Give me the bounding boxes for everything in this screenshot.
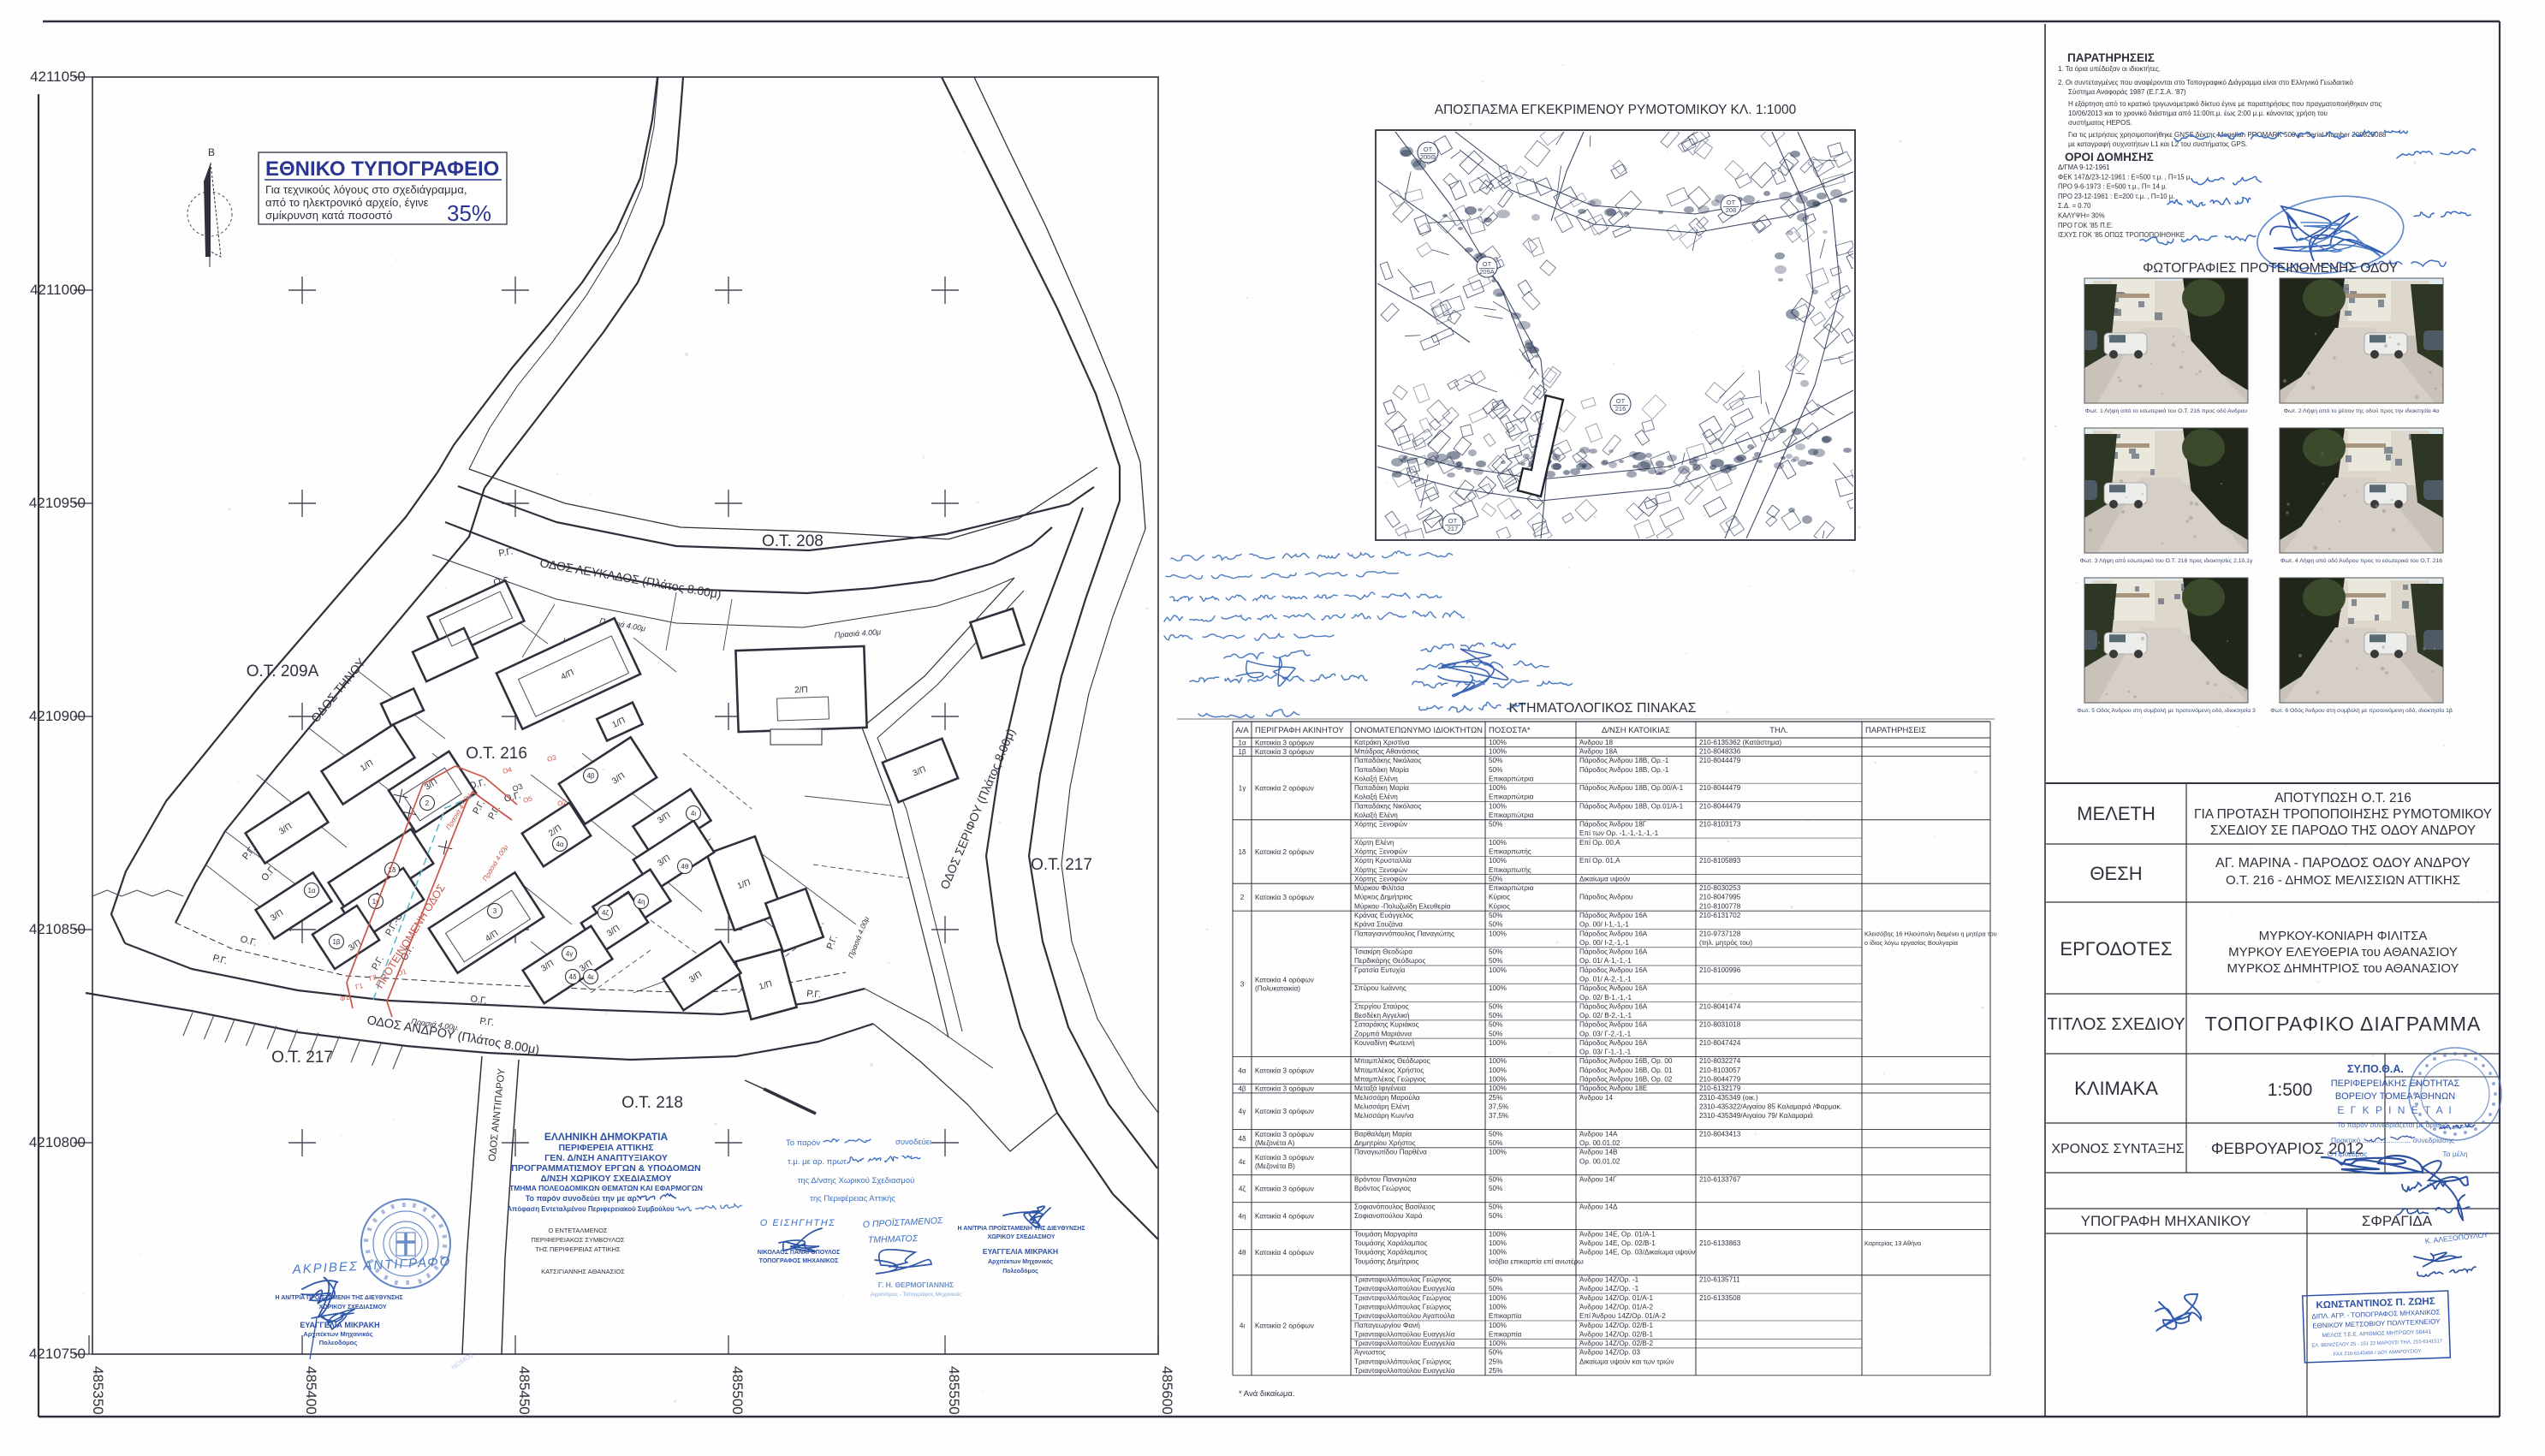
svg-text:Το παρόν: Το παρόν <box>786 1138 820 1148</box>
svg-text:Επικαρπώτρια: Επικαρπώτρια <box>1489 793 1534 801</box>
svg-text:100%: 100% <box>1489 1085 1507 1092</box>
svg-text:Ο.Τ. 217: Ο.Τ. 217 <box>271 1049 333 1067</box>
svg-text:Πάροδος Άνδρου 18Β, Ορ.00/Α-1: Πάροδος Άνδρου 18Β, Ορ.00/Α-1 <box>1579 784 1684 792</box>
svg-text:1β: 1β <box>332 938 340 946</box>
svg-text:της Δ/νσης Χωρικού Σχεδιασμού: της Δ/νσης Χωρικού Σχεδιασμού <box>798 1176 915 1186</box>
svg-text:Άνδρου 14Β: Άνδρου 14Β <box>1579 1149 1618 1156</box>
svg-text:Επικαρπία: Επικαρπία <box>1489 1312 1522 1320</box>
svg-text:ΟΤ: ΟΤ <box>1483 260 1492 268</box>
svg-text:ΤΟΠΟΓΡΑΦΟΣ ΜΗΧΑΝΙΚΟΣ: ΤΟΠΟΓΡΑΦΟΣ ΜΗΧΑΝΙΚΟΣ <box>759 1258 839 1264</box>
svg-text:Ο ΕΙΣΗΓΗΤΗΣ: Ο ΕΙΣΗΓΗΤΗΣ <box>760 1218 836 1228</box>
svg-text:Κατοικία 3 ορόφων: Κατοικία 3 ορόφων <box>1255 1186 1314 1193</box>
svg-text:4α: 4α <box>1238 1067 1246 1074</box>
svg-text:Επικαρπώτρια: Επικαρπώτρια <box>1489 811 1534 819</box>
svg-text:Το παρόν συνοδεύει την με αρ.: Το παρόν συνοδεύει την με αρ. <box>526 1194 639 1203</box>
svg-text:ΕΛΛΗΝΙΚΗ ΔΗΜΟΚΡΑΤΙΑ: ΕΛΛΗΝΙΚΗ ΔΗΜΟΚΡΑΤΙΑ <box>544 1131 669 1143</box>
svg-text:ΤΗΛ.: ΤΗΛ. <box>1769 726 1788 735</box>
svg-text:3: 3 <box>1240 980 1245 988</box>
svg-text:Άνδρου 18Α: Άνδρου 18Α <box>1579 747 1618 755</box>
svg-text:50%: 50% <box>1489 1176 1502 1184</box>
svg-text:Ο Πρόεδρος: Ο Πρόεδρος <box>2328 1150 2368 1158</box>
svg-text:210-8100778: 210-8100778 <box>1699 902 1741 910</box>
svg-text:100%: 100% <box>1489 1249 1507 1257</box>
svg-text:ΠΕΡΙΦΕΡΕΙΑ ΑΤΤΙΚΗΣ: ΠΕΡΙΦΕΡΕΙΑ ΑΤΤΙΚΗΣ <box>558 1143 653 1153</box>
svg-text:ΘΕΣΗ: ΘΕΣΗ <box>2090 863 2142 884</box>
svg-text:4θ: 4θ <box>681 863 689 871</box>
svg-text:100%: 100% <box>1489 784 1507 792</box>
svg-text:Επικαρπώτρια: Επικαρπώτρια <box>1489 884 1534 892</box>
svg-text:ΤΗΣ ΠΕΡΙΦΕΡΕΙΑΣ ΑΤΤΙΚΗΣ: ΤΗΣ ΠΕΡΙΦΕΡΕΙΑΣ ΑΤΤΙΚΗΣ <box>535 1245 621 1253</box>
svg-text:ΝΙΚΟΛΑΟΣ ΠΑΝΑΓΟΠΟΥΛΟΣ: ΝΙΚΟΛΑΟΣ ΠΑΝΑΓΟΠΟΥΛΟΣ <box>758 1250 840 1256</box>
svg-text:Πάροδος Άνδρου 16Β, Ορ. 01: Πάροδος Άνδρου 16Β, Ορ. 01 <box>1579 1067 1673 1074</box>
svg-text:από το ηλεκτρονικό αρχείο, έγι: από το ηλεκτρονικό αρχείο, έγινε <box>265 196 429 209</box>
svg-text:ΦΩΤΟΓΡΑΦΙΕΣ ΠΡΟΤΕΙΝΟΜΕΝΗΣ ΟΔΟΥ: ΦΩΤΟΓΡΑΦΙΕΣ ΠΡΟΤΕΙΝΟΜΕΝΗΣ ΟΔΟΥ <box>2143 261 2398 276</box>
svg-text:200Θ: 200Θ <box>1420 153 1436 161</box>
svg-text:210-8105893: 210-8105893 <box>1699 857 1741 865</box>
svg-text:485350: 485350 <box>90 1366 106 1415</box>
svg-text:Α/Α: Α/Α <box>1235 726 1249 735</box>
svg-text:Πάροδος Άνδρου 16Α: Πάροδος Άνδρου 16Α <box>1579 1039 1648 1047</box>
svg-text:Δημητρίου Χρήστος: Δημητρίου Χρήστος <box>1354 1139 1416 1147</box>
svg-text:Επικαρπώτρια: Επικαρπώτρια <box>1489 775 1534 782</box>
svg-text:2310-435322/Αιγαίου 85 Καλαμαρ: 2310-435322/Αιγαίου 85 Καλαμαριά /Φαρμακ… <box>1699 1102 1842 1110</box>
svg-text:Χόρτης Ξενοφών: Χόρτης Ξενοφών <box>1354 866 1407 874</box>
svg-text:Μπαμπλέκος Θεόδωρος: Μπαμπλέκος Θεόδωρος <box>1354 1057 1430 1065</box>
svg-text:Κράνα Σουζάνα: Κράνα Σουζάνα <box>1354 921 1403 929</box>
svg-text:4ε: 4ε <box>1239 1158 1246 1166</box>
svg-text:Σαταράκης Κυριάκος: Σαταράκης Κυριάκος <box>1354 1021 1419 1029</box>
svg-text:210-8100996: 210-8100996 <box>1699 966 1741 974</box>
svg-text:4η: 4η <box>1238 1213 1246 1221</box>
svg-text:210-6133767: 210-6133767 <box>1699 1176 1741 1184</box>
svg-text:210-6133508: 210-6133508 <box>1699 1294 1741 1302</box>
svg-text:2/Π: 2/Π <box>794 686 808 696</box>
svg-text:ΥΠΟΓΡΑΦΗ ΜΗΧΑΝΙΚΟΥ: ΥΠΟΓΡΑΦΗ ΜΗΧΑΝΙΚΟΥ <box>2081 1213 2251 1229</box>
svg-text:100%: 100% <box>1489 1076 1507 1084</box>
svg-text:Κλεισόβης 16 Ηλιούπολη διαμένε: Κλεισόβης 16 Ηλιούπολη διαμένει η μητέρα… <box>1864 930 1997 937</box>
svg-text:(Μεζονέτα Β): (Μεζονέτα Β) <box>1255 1162 1295 1170</box>
svg-text:1:500: 1:500 <box>2268 1080 2313 1100</box>
svg-text:ΠΕΡΙΓΡΑΦΗ ΑΚΙΝΗΤΟΥ: ΠΕΡΙΓΡΑΦΗ ΑΚΙΝΗΤΟΥ <box>1255 726 1344 735</box>
svg-text:Κολαξή Ελένη: Κολαξή Ελένη <box>1354 811 1398 819</box>
svg-text:Τα μέλη: Τα μέλη <box>2442 1150 2467 1158</box>
svg-text:Η ΑΝ/ΤΡΙΑ ΠΡΟΪΣΤΑΜΕΝΗ ΤΗΣ ΔΙΕΥ: Η ΑΝ/ΤΡΙΑ ΠΡΟΪΣΤΑΜΕΝΗ ΤΗΣ ΔΙΕΥΘΥΝΣΗΣ <box>275 1294 402 1301</box>
svg-text:Τσιακίρη Θεοδώρα: Τσιακίρη Θεοδώρα <box>1354 948 1412 956</box>
svg-text:ΠΡΟ ΓΟΚ '85 Π.Ε.: ΠΡΟ ΓΟΚ '85 Π.Ε. <box>2058 222 2113 229</box>
svg-text:Το παρόν συνεδριάζεται με: Το παρόν συνεδριάζεται με αριθμό <box>2337 1120 2448 1129</box>
svg-text:Η ΑΝ/ΤΡΙΑ ΠΡΟΪΣΤΑΜΕΝΗ ΤΗΣ ΔΙΕΥ: Η ΑΝ/ΤΡΙΑ ΠΡΟΪΣΤΑΜΕΝΗ ΤΗΣ ΔΙΕΥΘΥΝΣΗΣ <box>957 1225 1085 1232</box>
svg-text:Τριανταφυλλοπούλου Αγαπούλα: Τριανταφυλλοπούλου Αγαπούλα <box>1354 1312 1455 1320</box>
svg-text:ο ίδιος λόγω εργασίας Βουλγαρί: ο ίδιος λόγω εργασίας Βουλγαρία <box>1864 939 1959 947</box>
svg-text:Χόρτης Ξενοφών: Χόρτης Ξενοφών <box>1354 848 1407 856</box>
svg-text:25%: 25% <box>1489 1367 1502 1375</box>
svg-text:Κατοικία 2 ορόφων: Κατοικία 2 ορόφων <box>1255 848 1314 856</box>
svg-text:ΜΥΡΚΟΥ ΕΛΕΥΘΕΡΙΑ του ΑΘΑΝΑΣΙΟΥ: ΜΥΡΚΟΥ ΕΛΕΥΘΕΡΙΑ του ΑΘΑΝΑΣΙΟΥ <box>2228 945 2458 960</box>
svg-text:Φωτ. 3 Λήψη από εσωτερικό του: Φωτ. 3 Λήψη από εσωτερικό του Ο.Τ. 216 π… <box>2080 557 2253 564</box>
svg-text:50%: 50% <box>1489 875 1502 883</box>
svg-text:Πάροδος Άνδρου 18Β, Ορ.01/Α-1: Πάροδος Άνδρου 18Β, Ορ.01/Α-1 <box>1579 802 1684 810</box>
svg-text:1β: 1β <box>1238 748 1246 756</box>
svg-text:ΦΕΚ 147Δ/23-12-1961 : Ε=500 τ.: ΦΕΚ 147Δ/23-12-1961 : Ε=500 τ.μ. , Π=15 … <box>2058 173 2192 181</box>
svg-text:4ε: 4ε <box>587 973 594 981</box>
svg-text:Πολεοδόμος: Πολεοδόμος <box>319 1339 358 1346</box>
svg-text:Χόρτης Ξενοφών: Χόρτης Ξενοφών <box>1354 875 1407 883</box>
svg-text:Κατοικία 3 ορόφων: Κατοικία 3 ορόφων <box>1255 1108 1314 1115</box>
svg-text:Ο.Τ. 209Α: Ο.Τ. 209Α <box>247 663 319 680</box>
svg-text:Επικαρπωτής: Επικαρπωτής <box>1489 866 1531 874</box>
svg-text:ΕΥΑΓΓΕΛΙΑ ΜΙΚΡΑΚΗ: ΕΥΑΓΓΕΛΙΑ ΜΙΚΡΑΚΗ <box>300 1321 379 1329</box>
svg-text:50%: 50% <box>1489 1212 1502 1220</box>
svg-text:Κατράκη Χριστίνα: Κατράκη Χριστίνα <box>1354 739 1410 746</box>
svg-text:4β: 4β <box>1238 1085 1246 1093</box>
svg-text:Βεσδέκη Αγγελική: Βεσδέκη Αγγελική <box>1354 1012 1410 1019</box>
svg-text:50%: 50% <box>1489 921 1502 929</box>
svg-text:210-8047424: 210-8047424 <box>1699 1039 1741 1047</box>
svg-text:B: B <box>208 146 215 158</box>
svg-text:209Α: 209Α <box>1479 268 1495 276</box>
svg-text:Κατοικία 3 ορόφων: Κατοικία 3 ορόφων <box>1255 739 1314 746</box>
svg-text:Χόρτη Κρυσταλλία: Χόρτη Κρυσταλλία <box>1354 857 1412 865</box>
svg-text:50%: 50% <box>1489 1021 1502 1029</box>
svg-text:Τριανταφυλλόπουλος Γεώργιος: Τριανταφυλλόπουλος Γεώργιος <box>1354 1358 1451 1365</box>
svg-text:485400: 485400 <box>303 1366 319 1415</box>
svg-text:210-9737128: 210-9737128 <box>1699 930 1741 937</box>
svg-text:Άνδρου 14Ζ/Ορ. 01/Α-1: Άνδρου 14Ζ/Ορ. 01/Α-1 <box>1579 1294 1653 1302</box>
svg-text:Παπαγιαννόπουλος Παναγιώτης: Παπαγιαννόπουλος Παναγιώτης <box>1354 930 1454 937</box>
svg-text:Παπαγεωργίου Φανή: Παπαγεωργίου Φανή <box>1354 1322 1420 1329</box>
svg-text:Αρχιτέκτων Μηχανικός: Αρχιτέκτων Μηχανικός <box>988 1259 1053 1265</box>
svg-text:ΚΑΤΣΙΓΙΑΝΝΗΣ ΑΘΑΝΑΣΙΟΣ: ΚΑΤΣΙΓΙΑΝΝΗΣ ΑΘΑΝΑΣΙΟΣ <box>541 1268 625 1275</box>
svg-text:210-8032274: 210-8032274 <box>1699 1057 1741 1065</box>
svg-text:ΠΑΡΑΤΗΡΗΣΕΙΣ: ΠΑΡΑΤΗΡΗΣΕΙΣ <box>1865 726 1926 735</box>
svg-text:Πάροδος Άνδρου 16Α: Πάροδος Άνδρου 16Α <box>1579 1021 1648 1029</box>
svg-text:ΓΕΝ. Δ/ΝΣΗ ΑΝΑΠΤΥΞΙΑΚΟΥ: ΓΕΝ. Δ/ΝΣΗ ΑΝΑΠΤΥΞΙΑΚΟΥ <box>544 1153 668 1163</box>
svg-text:4γ: 4γ <box>1239 1108 1247 1115</box>
svg-text:50%: 50% <box>1489 957 1502 965</box>
svg-text:Παναγιωτίδου Παρθένα: Παναγιωτίδου Παρθένα <box>1354 1149 1427 1156</box>
svg-text:Ορ. 01/ Α-2,-1,-1: Ορ. 01/ Α-2,-1,-1 <box>1579 975 1632 983</box>
svg-text:35%: 35% <box>447 200 491 226</box>
svg-text:ΟΤ: ΟΤ <box>1424 146 1433 153</box>
svg-text:25%: 25% <box>1489 1358 1502 1365</box>
svg-text:Δ/ΝΣΗ ΧΩΡΙΚΟΥ ΣΧΕΔΙΑΣΜΟΥ: Δ/ΝΣΗ ΧΩΡΙΚΟΥ ΣΧΕΔΙΑΣΜΟΥ <box>540 1174 671 1184</box>
svg-text:217: 217 <box>1448 525 1459 532</box>
svg-text:Ορ. 00/ Ι-2,-1,-1: Ορ. 00/ Ι-2,-1,-1 <box>1579 939 1629 947</box>
svg-text:Ο ΕΝΤΕΤΑΛΜΕΝΟΣ: Ο ΕΝΤΕΤΑΛΜΕΝΟΣ <box>548 1227 607 1234</box>
svg-text:100%: 100% <box>1489 1057 1507 1065</box>
svg-text:100%: 100% <box>1489 1239 1507 1247</box>
svg-text:4β: 4β <box>586 772 594 780</box>
svg-text:Δικαίωμα υψούν: Δικαίωμα υψούν <box>1579 875 1630 883</box>
svg-text:Επικαρπία: Επικαρπία <box>1489 1330 1522 1338</box>
svg-text:ΜΥΡΚΟΥ-ΚΟΝΙΑΡΗ ΦΙΛΙΤΣΑ: ΜΥΡΚΟΥ-ΚΟΝΙΑΡΗ ΦΙΛΙΤΣΑ <box>2259 929 2428 943</box>
svg-text:4η: 4η <box>638 898 645 906</box>
svg-text:Κατοικία 2 ορόφων: Κατοικία 2 ορόφων <box>1255 785 1314 793</box>
svg-text:Τριανταφυλλόπουλος Γεώργιος: Τριανταφυλλόπουλος Γεώργιος <box>1354 1276 1451 1284</box>
svg-text:Άνδρου 14Ε, Ορ. 02/Β-1: Άνδρου 14Ε, Ορ. 02/Β-1 <box>1579 1239 1656 1247</box>
svg-text:Φωτ. 2 Λήψη από το μέσον της ο: Φωτ. 2 Λήψη από το μέσον της οδού προς τ… <box>2284 407 2440 414</box>
svg-text:Κύριος: Κύριος <box>1489 902 1510 910</box>
svg-text:100%: 100% <box>1489 739 1507 746</box>
svg-text:Πάροδος Άνδρου 18Β, Ορ.-1: Πάροδος Άνδρου 18Β, Ορ.-1 <box>1579 757 1669 764</box>
svg-text:Δ/ΝΣΗ ΚΑΤΟΙΚΙΑΣ: Δ/ΝΣΗ ΚΑΤΟΙΚΙΑΣ <box>1602 726 1670 735</box>
svg-text:Άνδρου 14: Άνδρου 14 <box>1579 1094 1613 1102</box>
svg-text:100%: 100% <box>1489 966 1507 974</box>
svg-text:ΣΥ.ΠΟ.Θ.Α.: ΣΥ.ΠΟ.Θ.Α. <box>2347 1063 2404 1075</box>
svg-text:Κατοικία 4 ορόφων: Κατοικία 4 ορόφων <box>1255 1213 1314 1221</box>
svg-text:Καρτερίας 13 Αθήνα: Καρτερίας 13 Αθήνα <box>1864 1239 1922 1247</box>
svg-text:4ζ: 4ζ <box>602 909 609 917</box>
svg-text:ΑΠΟΤΥΠΩΣΗ Ο.Τ. 216: ΑΠΟΤΥΠΩΣΗ Ο.Τ. 216 <box>2274 791 2411 805</box>
svg-text:50%: 50% <box>1489 1012 1502 1019</box>
svg-text:της Περιφέρειας Αττικής: της Περιφέρειας Αττικής <box>810 1194 895 1203</box>
svg-text:1δ: 1δ <box>1238 848 1246 856</box>
svg-text:ΠΡΟ 9-6-1973 : Ε=500 τ.μ., Π=: ΠΡΟ 9-6-1973 : Ε=500 τ.μ., Π= 14 μ. <box>2058 183 2167 191</box>
svg-text:(Πολυκατοικία): (Πολυκατοικία) <box>1255 984 1300 992</box>
svg-text:Πολεοδόμος: Πολεοδόμος <box>1002 1268 1038 1275</box>
svg-text:ΠΕΡΙΦΕΡΕΙΑΚΗΣ ΕΝΟΤΗΤΑΣ: ΠΕΡΙΦΕΡΕΙΑΚΗΣ ΕΝΟΤΗΤΑΣ <box>2331 1079 2460 1089</box>
svg-text:ΠΑΡΑΤΗΡΗΣΕΙΣ: ΠΑΡΑΤΗΡΗΣΕΙΣ <box>2067 51 2155 64</box>
svg-text:485500: 485500 <box>729 1366 746 1415</box>
svg-text:4ι: 4ι <box>1240 1322 1246 1329</box>
svg-text:100%: 100% <box>1489 802 1507 810</box>
svg-text:100%: 100% <box>1489 1149 1507 1156</box>
svg-text:ΟΤ: ΟΤ <box>1448 517 1458 525</box>
svg-text:Κατοικία 4 ορόφων: Κατοικία 4 ορόφων <box>1255 976 1314 984</box>
svg-text:Ο.Τ. 218: Ο.Τ. 218 <box>621 1094 683 1112</box>
svg-text:ΑΠΟΣΠΑΣΜΑ ΕΓΚΕΚΡΙΜΕΝΟΥ ΡΥΜΟΤΟΜ: ΑΠΟΣΠΑΣΜΑ ΕΓΚΕΚΡΙΜΕΝΟΥ ΡΥΜΟΤΟΜΙΚΟΥ ΚΛ. 1… <box>1435 103 1797 117</box>
svg-text:Πάροδος Άνδρου 18Γ: Πάροδος Άνδρου 18Γ <box>1579 821 1647 829</box>
svg-text:100%: 100% <box>1489 747 1507 755</box>
svg-text:2310-435349 (οικ.): 2310-435349 (οικ.) <box>1699 1094 1758 1102</box>
svg-text:(Μεζονέτα Α): (Μεζονέτα Α) <box>1255 1139 1295 1147</box>
svg-text:ΚΤΗΜΑΤΟΛΟΓΙΚΟΣ ΠΙΝΑΚΑΣ: ΚΤΗΜΑΤΟΛΟΓΙΚΟΣ ΠΙΝΑΚΑΣ <box>1509 701 1697 716</box>
svg-text:ΠΡΟ 23-12-1961 : Ε=200 τ.μ. ,: ΠΡΟ 23-12-1961 : Ε=200 τ.μ. , Π=10 μ. <box>2058 193 2174 200</box>
svg-text:210-6135711: 210-6135711 <box>1699 1276 1740 1284</box>
svg-text:50%: 50% <box>1489 1203 1502 1210</box>
svg-text:100%: 100% <box>1489 1039 1507 1047</box>
svg-text:Για τεχνικούς λόγους στο σ: Για τεχνικούς λόγους στο σχεδιάγραμμα, <box>265 183 467 196</box>
svg-text:210-8031018: 210-8031018 <box>1699 1021 1741 1029</box>
svg-text:ΚΛΙΜΑΚΑ: ΚΛΙΜΑΚΑ <box>2074 1078 2158 1099</box>
svg-text:Άνδρου 14Ζ/Ορ. 03: Άνδρου 14Ζ/Ορ. 03 <box>1579 1349 1640 1357</box>
svg-text:ΤΜΗΜΑΤΟΣ: ΤΜΗΜΑΤΟΣ <box>868 1233 919 1245</box>
svg-text:Ρ.Γ.: Ρ.Γ. <box>479 1016 495 1028</box>
svg-text:Δικαίωμα υψούν και των τριών: Δικαίωμα υψούν και των τριών <box>1579 1358 1674 1365</box>
svg-text:Τριανταφυλλοπούλου Ευαγγελία: Τριανταφυλλοπούλου Ευαγγελία <box>1354 1367 1455 1375</box>
svg-text:ΤΜΗΜΑ ΠΟΛΕΟΔΟΜΙΚΩΝ ΘΕΜΑΤΩΝ ΚΑΙ: ΤΜΗΜΑ ΠΟΛΕΟΔΟΜΙΚΩΝ ΘΕΜΑΤΩΝ ΚΑΙ ΕΦΑΡΜΟΓΩΝ <box>509 1184 703 1192</box>
svg-text:Ορ. 00,01,02: Ορ. 00,01,02 <box>1579 1157 1620 1165</box>
svg-text:Επικαρπωτής: Επικαρπωτής <box>1489 848 1531 856</box>
svg-text:Επί Άνδρου 14Ζ/Ορ. 01/Α-2: Επί Άνδρου 14Ζ/Ορ. 01/Α-2 <box>1579 1312 1666 1320</box>
svg-text:Σύστημα Αναφοράς 1987 (Ε.Γ.Σ.Α: Σύστημα Αναφοράς 1987 (Ε.Γ.Σ.Α. '87) <box>2068 88 2186 96</box>
svg-text:37,5%: 37,5% <box>1489 1102 1508 1110</box>
svg-text:Σπύρου Ιωάννης: Σπύρου Ιωάννης <box>1354 984 1406 992</box>
svg-text:Πάροδος Άνδρου: Πάροδος Άνδρου <box>1579 894 1633 901</box>
svg-text:ΟΡΟΙ ΔΟΜΗΣΗΣ: ΟΡΟΙ ΔΟΜΗΣΗΣ <box>2065 151 2154 163</box>
svg-text:Επί Ορ. 00,Α: Επί Ορ. 00,Α <box>1579 839 1620 847</box>
svg-text:Άνδρου 14Ζ/Ορ. 02/Β-2: Άνδρου 14Ζ/Ορ. 02/Β-2 <box>1579 1340 1653 1347</box>
svg-text:ΕΘΝΙΚΟ ΤΥΠΟΓΡΑΦΕΙΟ: ΕΘΝΙΚΟ ΤΥΠΟΓΡΑΦΕΙΟ <box>265 157 499 181</box>
svg-text:Κουναδίνη Φωτεινή: Κουναδίνη Φωτεινή <box>1354 1039 1415 1047</box>
svg-text:Ορ. 02/ Β-2,-1,-1: Ορ. 02/ Β-2,-1,-1 <box>1579 1012 1632 1019</box>
svg-text:1α: 1α <box>307 887 315 894</box>
svg-text:25%: 25% <box>1489 1094 1502 1102</box>
svg-text:ΜΕΛΕΤΗ: ΜΕΛΕΤΗ <box>2077 803 2156 824</box>
svg-text:Ορ. 03/ Γ-2,-1,-1: Ορ. 03/ Γ-2,-1,-1 <box>1579 1030 1632 1037</box>
svg-text:Η εξάρτηση από το κρατικό τριγ: Η εξάρτηση από το κρατικό τριγωνομετρικό… <box>2068 100 2381 108</box>
svg-text:σμίκρυνση κατά ποσοστό: σμίκρυνση κατά ποσοστό <box>265 209 392 222</box>
svg-text:Πάροδος Άνδρου 18Β, Ορ.-1: Πάροδος Άνδρου 18Β, Ορ.-1 <box>1579 766 1669 774</box>
svg-text:Πάροδος Άνδρου 16Α: Πάροδος Άνδρου 16Α <box>1579 1002 1648 1010</box>
svg-text:Ο.Τ. 216 - ΔΗΜΟΣ ΜΕΛΙΣΣΙΩΝ ΑΤΤ: Ο.Τ. 216 - ΔΗΜΟΣ ΜΕΛΙΣΣΙΩΝ ΑΤΤΙΚΗΣ <box>2226 873 2460 888</box>
svg-text:Άνδρου 14Ζ/Ορ. -1: Άνδρου 14Ζ/Ορ. -1 <box>1579 1285 1639 1293</box>
svg-text:Παπαδάκης Νικόλαος: Παπαδάκης Νικόλαος <box>1354 802 1421 810</box>
svg-text:Σοφιανοπούλου Χαρά: Σοφιανοπούλου Χαρά <box>1354 1212 1423 1220</box>
svg-text:Παπαδάκη Μαρία: Παπαδάκη Μαρία <box>1354 766 1409 774</box>
svg-text:100%: 100% <box>1489 1067 1507 1074</box>
svg-text:Γ. Η. ΘΕΡΜΟΓΙΑΝΝΗΣ: Γ. Η. ΘΕΡΜΟΓΙΑΝΝΗΣ <box>878 1281 954 1289</box>
svg-text:Κύριος: Κύριος <box>1489 894 1510 901</box>
svg-text:Πάροδος Άνδρου 16Α: Πάροδος Άνδρου 16Α <box>1579 930 1648 937</box>
svg-text:Κολαξή Ελένη: Κολαξή Ελένη <box>1354 793 1398 801</box>
svg-text:Άνδρου 14Ε, Ορ. 03/Δικαίωμα υψ: Άνδρου 14Ε, Ορ. 03/Δικαίωμα υψούν <box>1579 1249 1695 1257</box>
svg-text:4δ: 4δ <box>1238 1135 1246 1143</box>
svg-text:100%: 100% <box>1489 839 1507 847</box>
svg-text:ΒΟΡΕΙΟΥ ΤΟΜΕΑ ΑΘΗΝΩΝ: ΒΟΡΕΙΟΥ ΤΟΜΕΑ ΑΘΗΝΩΝ <box>2335 1091 2455 1102</box>
svg-text:4ι: 4ι <box>691 810 696 817</box>
svg-text:ΚΑΛΥΨΗ= 30%: ΚΑΛΥΨΗ= 30% <box>2058 212 2105 220</box>
svg-text:Σοφιανόπουλος Βασίλειος: Σοφιανόπουλος Βασίλειος <box>1354 1203 1435 1210</box>
svg-text:210-8044479: 210-8044479 <box>1699 784 1741 792</box>
svg-text:1γ: 1γ <box>1239 785 1247 793</box>
svg-text:ΕΥΑΓΓΕΛΙΑ ΜΙΚΡΑΚΗ: ΕΥΑΓΓΕΛΙΑ ΜΙΚΡΑΚΗ <box>983 1247 1058 1256</box>
svg-text:210-8030253: 210-8030253 <box>1699 884 1741 892</box>
svg-text:50%: 50% <box>1489 821 1502 829</box>
svg-text:Χόρτης Ξενοφών: Χόρτης Ξενοφών <box>1354 821 1407 829</box>
svg-text:100%: 100% <box>1489 1322 1507 1329</box>
svg-text:τ.μ. με αρ. πρωτ.: τ.μ. με αρ. πρωτ. <box>788 1157 848 1167</box>
svg-text:1. Τα όρια υπέδειξαν οι ιδιοκτ: 1. Τα όρια υπέδειξαν οι ιδιοκτήτες. <box>2058 65 2161 73</box>
svg-text:Κατοικία 3 ορόφων: Κατοικία 3 ορόφων <box>1255 1131 1314 1138</box>
svg-text:485450: 485450 <box>516 1366 532 1415</box>
svg-text:Μπαμπλέκος Γεώργιος: Μπαμπλέκος Γεώργιος <box>1354 1076 1426 1084</box>
svg-text:Επί Ορ. 01,Α: Επί Ορ. 01,Α <box>1579 857 1620 865</box>
svg-text:Γρατσία Ευτυχία: Γρατσία Ευτυχία <box>1354 966 1406 974</box>
svg-text:ΟΤ: ΟΤ <box>1616 397 1626 405</box>
svg-text:Μελισσάρη Μαρούλα: Μελισσάρη Μαρούλα <box>1354 1094 1420 1102</box>
svg-text:Τουμάσης Δημήτριος: Τουμάσης Δημήτριος <box>1354 1257 1419 1265</box>
svg-text:Μπάδρας Αθανάσιος: Μπάδρας Αθανάσιος <box>1354 747 1419 755</box>
svg-text:4ζ: 4ζ <box>1239 1186 1246 1193</box>
svg-text:Ο.Τ. 216: Ο.Τ. 216 <box>466 745 527 763</box>
svg-text:Πάροδος Άνδρου 16Β, Ορ. 02: Πάροδος Άνδρου 16Β, Ορ. 02 <box>1579 1076 1673 1084</box>
svg-text:50%: 50% <box>1489 766 1502 774</box>
svg-text:Παπαδάκη Μαρία: Παπαδάκη Μαρία <box>1354 784 1409 792</box>
svg-text:Ορ. 00.01.02: Ορ. 00.01.02 <box>1579 1139 1620 1147</box>
svg-text:2: 2 <box>425 799 430 807</box>
svg-text:50%: 50% <box>1489 1002 1502 1010</box>
svg-text:* Ανά δικαίωμα.: * Ανά δικαίωμα. <box>1239 1389 1295 1399</box>
svg-text:Άνδρου 18: Άνδρου 18 <box>1579 739 1613 746</box>
svg-text:Επί των Ορ. -1,-1,-1,-1,-1: Επί των Ορ. -1,-1,-1,-1,-1 <box>1579 829 1659 837</box>
svg-text:Μύρκου Φιλίτσα: Μύρκου Φιλίτσα <box>1354 884 1405 892</box>
svg-text:100%: 100% <box>1489 1340 1507 1347</box>
svg-text:Κατοικία 3 ορόφων: Κατοικία 3 ορόφων <box>1255 1085 1314 1093</box>
svg-text:Κατοικία 3 ορόφων: Κατοικία 3 ορόφων <box>1255 894 1314 901</box>
svg-text:Ζορμπά Μαριάννα: Ζορμπά Μαριάννα <box>1354 1030 1412 1037</box>
svg-text:Άγνωστος: Άγνωστος <box>1354 1349 1386 1357</box>
svg-text:Πάροδος Άνδρου 16Β, Ορ. 00: Πάροδος Άνδρου 16Β, Ορ. 00 <box>1579 1057 1673 1065</box>
svg-text:Κολαξή Ελένη: Κολαξή Ελένη <box>1354 775 1398 782</box>
svg-text:Περδικάρης Θεόδωρος: Περδικάρης Θεόδωρος <box>1354 957 1425 965</box>
svg-text:Απόφαση Εντεταλμένου Περιφερει: Απόφαση Εντεταλμένου Περιφερειακού Συμβο… <box>507 1205 675 1213</box>
svg-text:Σ.Δ. = 0.70: Σ.Δ. = 0.70 <box>2058 202 2091 210</box>
svg-text:Τριανταφυλλοπούλου Ευαγγελία: Τριανταφυλλοπούλου Ευαγγελία <box>1354 1285 1455 1293</box>
svg-text:Μεταξά Ιφιγένεια: Μεταξά Ιφιγένεια <box>1354 1085 1406 1092</box>
svg-text:210-8047995: 210-8047995 <box>1699 894 1741 901</box>
svg-text:ΠΡΟΓΡΑΜΜΑΤΙΣΜΟΥ ΕΡΓΩΝ & ΥΠΟΔΟΜ: ΠΡΟΓΡΑΜΜΑΤΙΣΜΟΥ ΕΡΓΩΝ & ΥΠΟΔΟΜΩΝ <box>511 1163 700 1174</box>
svg-text:210-6131702: 210-6131702 <box>1699 912 1741 919</box>
svg-text:ΙΣΧΥΣ ΓΟΚ '85 ΟΠΩΣ ΤΡΟΠΟΠΟΙΗΘΗ: ΙΣΧΥΣ ΓΟΚ '85 ΟΠΩΣ ΤΡΟΠΟΠΟΙΗΘΗΚΕ <box>2058 231 2185 239</box>
svg-text:210-8044779: 210-8044779 <box>1699 1076 1741 1084</box>
svg-text:Φωτ. 4 Λήψη από οδό Άνδρου προ: Φωτ. 4 Λήψη από οδό Άνδρου προς το εσωτε… <box>2280 557 2442 564</box>
svg-text:50%: 50% <box>1489 1349 1502 1357</box>
svg-text:100%: 100% <box>1489 1294 1507 1302</box>
svg-text:210-8044479: 210-8044479 <box>1699 757 1741 764</box>
svg-text:Φωτ. 1 Λήψη από το εσωτερικό τ: Φωτ. 1 Λήψη από το εσωτερικό του Ο.Τ. 21… <box>2085 407 2247 414</box>
svg-text:210-6132179: 210-6132179 <box>1699 1085 1741 1092</box>
svg-text:Βαρθαλάμη Μαρία: Βαρθαλάμη Μαρία <box>1354 1130 1412 1138</box>
svg-text:Βρόντος Γεώργιος: Βρόντος Γεώργιος <box>1354 1185 1411 1192</box>
svg-text:Μύρκου -Πολυζωίδη Ελευθερία: Μύρκου -Πολυζωίδη Ελευθερία <box>1354 902 1451 910</box>
svg-text:Αγρονόμος - Τοπογράφος Μηχανικ: Αγρονόμος - Τοπογράφος Μηχανικός <box>871 1291 962 1298</box>
svg-text:Άνδρου 14Δ: Άνδρου 14Δ <box>1579 1203 1618 1210</box>
svg-text:1α: 1α <box>1238 739 1246 746</box>
svg-text:Άνδρου 14Α: Άνδρου 14Α <box>1579 1130 1618 1138</box>
svg-text:Δ/ΓΜΑ 9-12-1961: Δ/ΓΜΑ 9-12-1961 <box>2058 163 2110 171</box>
svg-text:210-8103173: 210-8103173 <box>1699 821 1741 829</box>
svg-text:485550: 485550 <box>946 1366 962 1415</box>
svg-text:216: 216 <box>1615 405 1626 413</box>
svg-text:Πάροδος Άνδρου 16Α: Πάροδος Άνδρου 16Α <box>1579 966 1648 974</box>
svg-text:ΟΝΟΜΑΤΕΠΩΝΥΜΟ ΙΔΙΟΚΤΗΤΩΝ: ΟΝΟΜΑΤΕΠΩΝΥΜΟ ΙΔΙΟΚΤΗΤΩΝ <box>1354 726 1483 735</box>
svg-text:Άνδρου 14Ζ/Ορ. 01/Α-2: Άνδρου 14Ζ/Ορ. 01/Α-2 <box>1579 1304 1653 1311</box>
svg-text:Χόρτη Ελένη: Χόρτη Ελένη <box>1354 839 1394 847</box>
svg-text:ΣΧΕΔΙΟΥ ΣΕ ΠΑΡΟΔΟ ΤΗΣ ΟΔΟΥ ΑΝΔ: ΣΧΕΔΙΟΥ ΣΕ ΠΑΡΟΔΟ ΤΗΣ ΟΔΟΥ ΑΝΔΡΟΥ <box>2210 823 2476 838</box>
svg-text:Κατοικία 3 ορόφων: Κατοικία 3 ορόφων <box>1255 1067 1314 1074</box>
svg-text:3: 3 <box>493 907 497 915</box>
svg-text:Κατοικία 4 ορόφων: Κατοικία 4 ορόφων <box>1255 1249 1314 1257</box>
svg-text:(τηλ. μητρός του): (τηλ. μητρός του) <box>1699 939 1752 947</box>
svg-text:2310-435349/Αιγαίου 79/ Καλαμα: 2310-435349/Αιγαίου 79/ Καλαμαριά <box>1699 1112 1813 1120</box>
svg-text:Άνδρου 14Ζ/Ορ. 02/Β-1: Άνδρου 14Ζ/Ορ. 02/Β-1 <box>1579 1330 1653 1338</box>
svg-text:210-8043413: 210-8043413 <box>1699 1130 1741 1138</box>
svg-text:Πάροδος Άνδρου 16Α: Πάροδος Άνδρου 16Α <box>1579 948 1648 956</box>
svg-text:2. Οι συντεταγμένες που αναφέρ: 2. Οι συντεταγμένες που αναφέρονται στο … <box>2058 79 2353 86</box>
svg-text:Κατοικία 2 ορόφων: Κατοικία 2 ορόφων <box>1255 1322 1314 1329</box>
svg-text:Ο.Τ. 217: Ο.Τ. 217 <box>1031 856 1092 874</box>
svg-text:50%: 50% <box>1489 948 1502 956</box>
svg-text:2: 2 <box>1240 894 1245 901</box>
svg-text:485600: 485600 <box>1159 1366 1175 1415</box>
svg-text:ΜΥΡΚΟΣ ΔΗΜΗΤΡΙΟΣ του ΑΘΑΝΑΣΙΟΥ: ΜΥΡΚΟΣ ΔΗΜΗΤΡΙΟΣ του ΑΘΑΝΑΣΙΟΥ <box>2227 961 2459 976</box>
svg-text:ΟΤ: ΟΤ <box>1727 199 1736 206</box>
svg-text:ΧΡΟΝΟΣ ΣΥΝΤΑΞΗΣ: ΧΡΟΝΟΣ ΣΥΝΤΑΞΗΣ <box>2051 1142 2184 1156</box>
svg-text:10/06/2013 και το χρονικό διάσ: 10/06/2013 και το χρονικό διάστημα από 1… <box>2068 110 2328 117</box>
svg-text:100%: 100% <box>1489 1230 1507 1238</box>
svg-text:Άνδρου 14Ζ/Ορ. -1: Άνδρου 14Ζ/Ορ. -1 <box>1579 1276 1639 1284</box>
